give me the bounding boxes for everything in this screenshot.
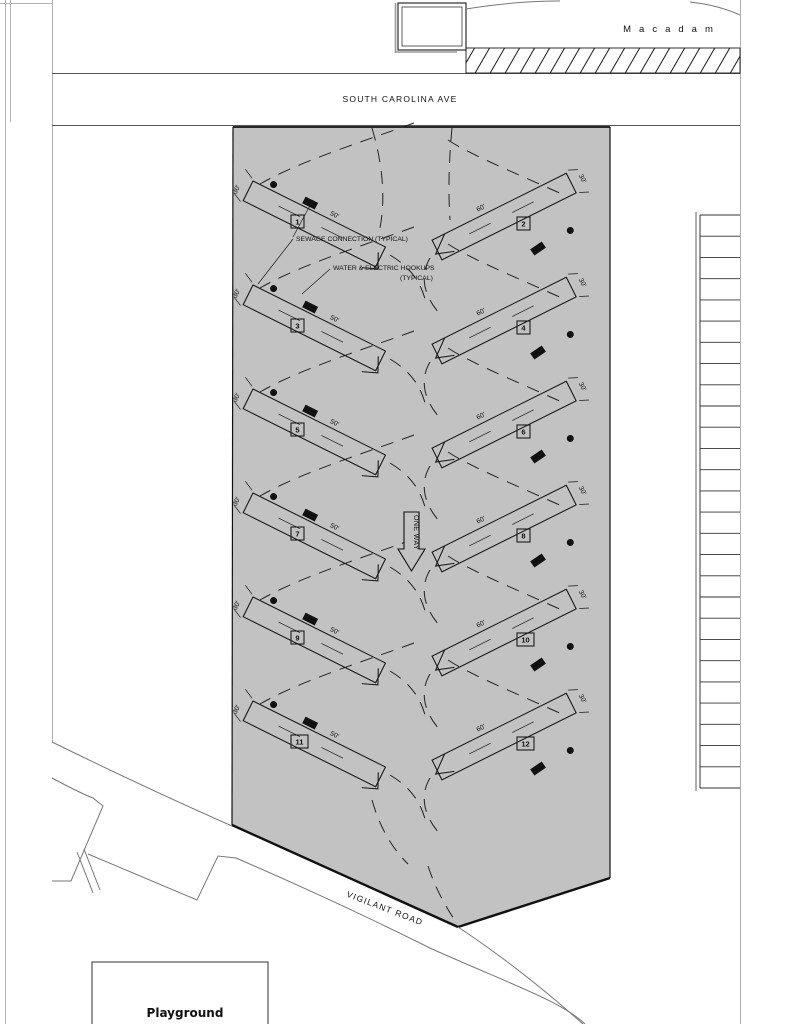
macadam-pavement-hatch xyxy=(466,48,740,73)
one-way-label: ONE WAY xyxy=(412,515,419,550)
site-number: 11 xyxy=(296,738,304,747)
site-number: 3 xyxy=(295,322,299,331)
site-number: 8 xyxy=(521,532,525,541)
water-callout-label-line1: WATER & ELECTRIC HOOKUPS xyxy=(333,265,435,272)
site-plan-page: Macadam SOUTH CAROLINA AVE 30'50'130'60'… xyxy=(0,0,791,1024)
street-label-south-carolina-ave: SOUTH CAROLINA AVE xyxy=(343,94,458,104)
playground-label: Playground xyxy=(147,1006,224,1020)
site-number: 5 xyxy=(295,426,299,435)
curb-curve-top-right xyxy=(690,2,740,15)
sewage-callout-label: SEWAGE CONNECTION (TYPICAL) xyxy=(296,236,408,243)
site-number: 10 xyxy=(521,636,529,645)
street-label-macadam: Macadam xyxy=(623,24,721,35)
water-callout-label-line2: (TYPICAL) xyxy=(400,275,433,282)
site-number: 2 xyxy=(521,220,525,229)
site-number: 9 xyxy=(295,634,299,643)
site-number: 12 xyxy=(521,740,529,749)
site-number: 7 xyxy=(295,530,299,539)
site-plan-drawing: Macadam SOUTH CAROLINA AVE 30'50'130'60'… xyxy=(0,0,791,1024)
curb-curve-top xyxy=(466,1,560,9)
parking-strip xyxy=(696,212,740,791)
site-number: 6 xyxy=(521,428,525,437)
